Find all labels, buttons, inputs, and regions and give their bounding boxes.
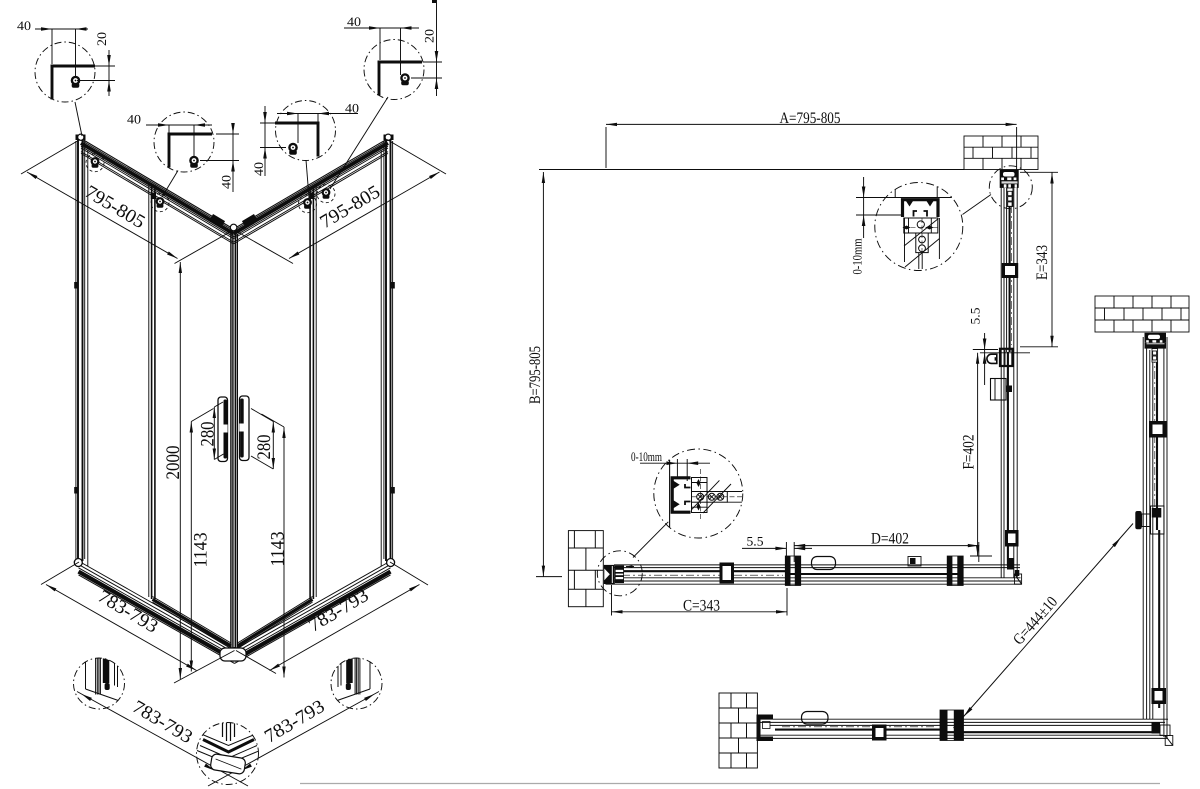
svg-text:0-10mm: 0-10mm [850, 239, 865, 275]
svg-text:40: 40 [127, 112, 141, 127]
svg-text:5.5: 5.5 [747, 534, 764, 549]
svg-text:1143: 1143 [190, 533, 211, 568]
svg-text:0-10mm: 0-10mm [631, 449, 662, 464]
svg-text:40: 40 [347, 14, 361, 29]
svg-text:20: 20 [94, 32, 109, 46]
svg-text:A=795-805: A=795-805 [780, 110, 841, 127]
svg-text:F=402: F=402 [961, 435, 978, 470]
svg-text:40: 40 [17, 18, 31, 33]
svg-text:40: 40 [218, 175, 233, 189]
svg-text:1143: 1143 [267, 532, 288, 567]
svg-text:280: 280 [198, 422, 219, 447]
svg-text:40: 40 [251, 162, 266, 176]
svg-text:B=795-805: B=795-805 [527, 346, 544, 404]
svg-text:E=343: E=343 [1034, 245, 1051, 280]
svg-text:D=402: D=402 [871, 530, 909, 547]
svg-text:280: 280 [254, 435, 275, 460]
svg-text:5.5: 5.5 [968, 308, 983, 325]
svg-text:2000: 2000 [163, 446, 184, 480]
svg-text:C=343: C=343 [683, 597, 720, 614]
svg-text:40: 40 [345, 101, 359, 116]
svg-text:20: 20 [421, 29, 436, 43]
